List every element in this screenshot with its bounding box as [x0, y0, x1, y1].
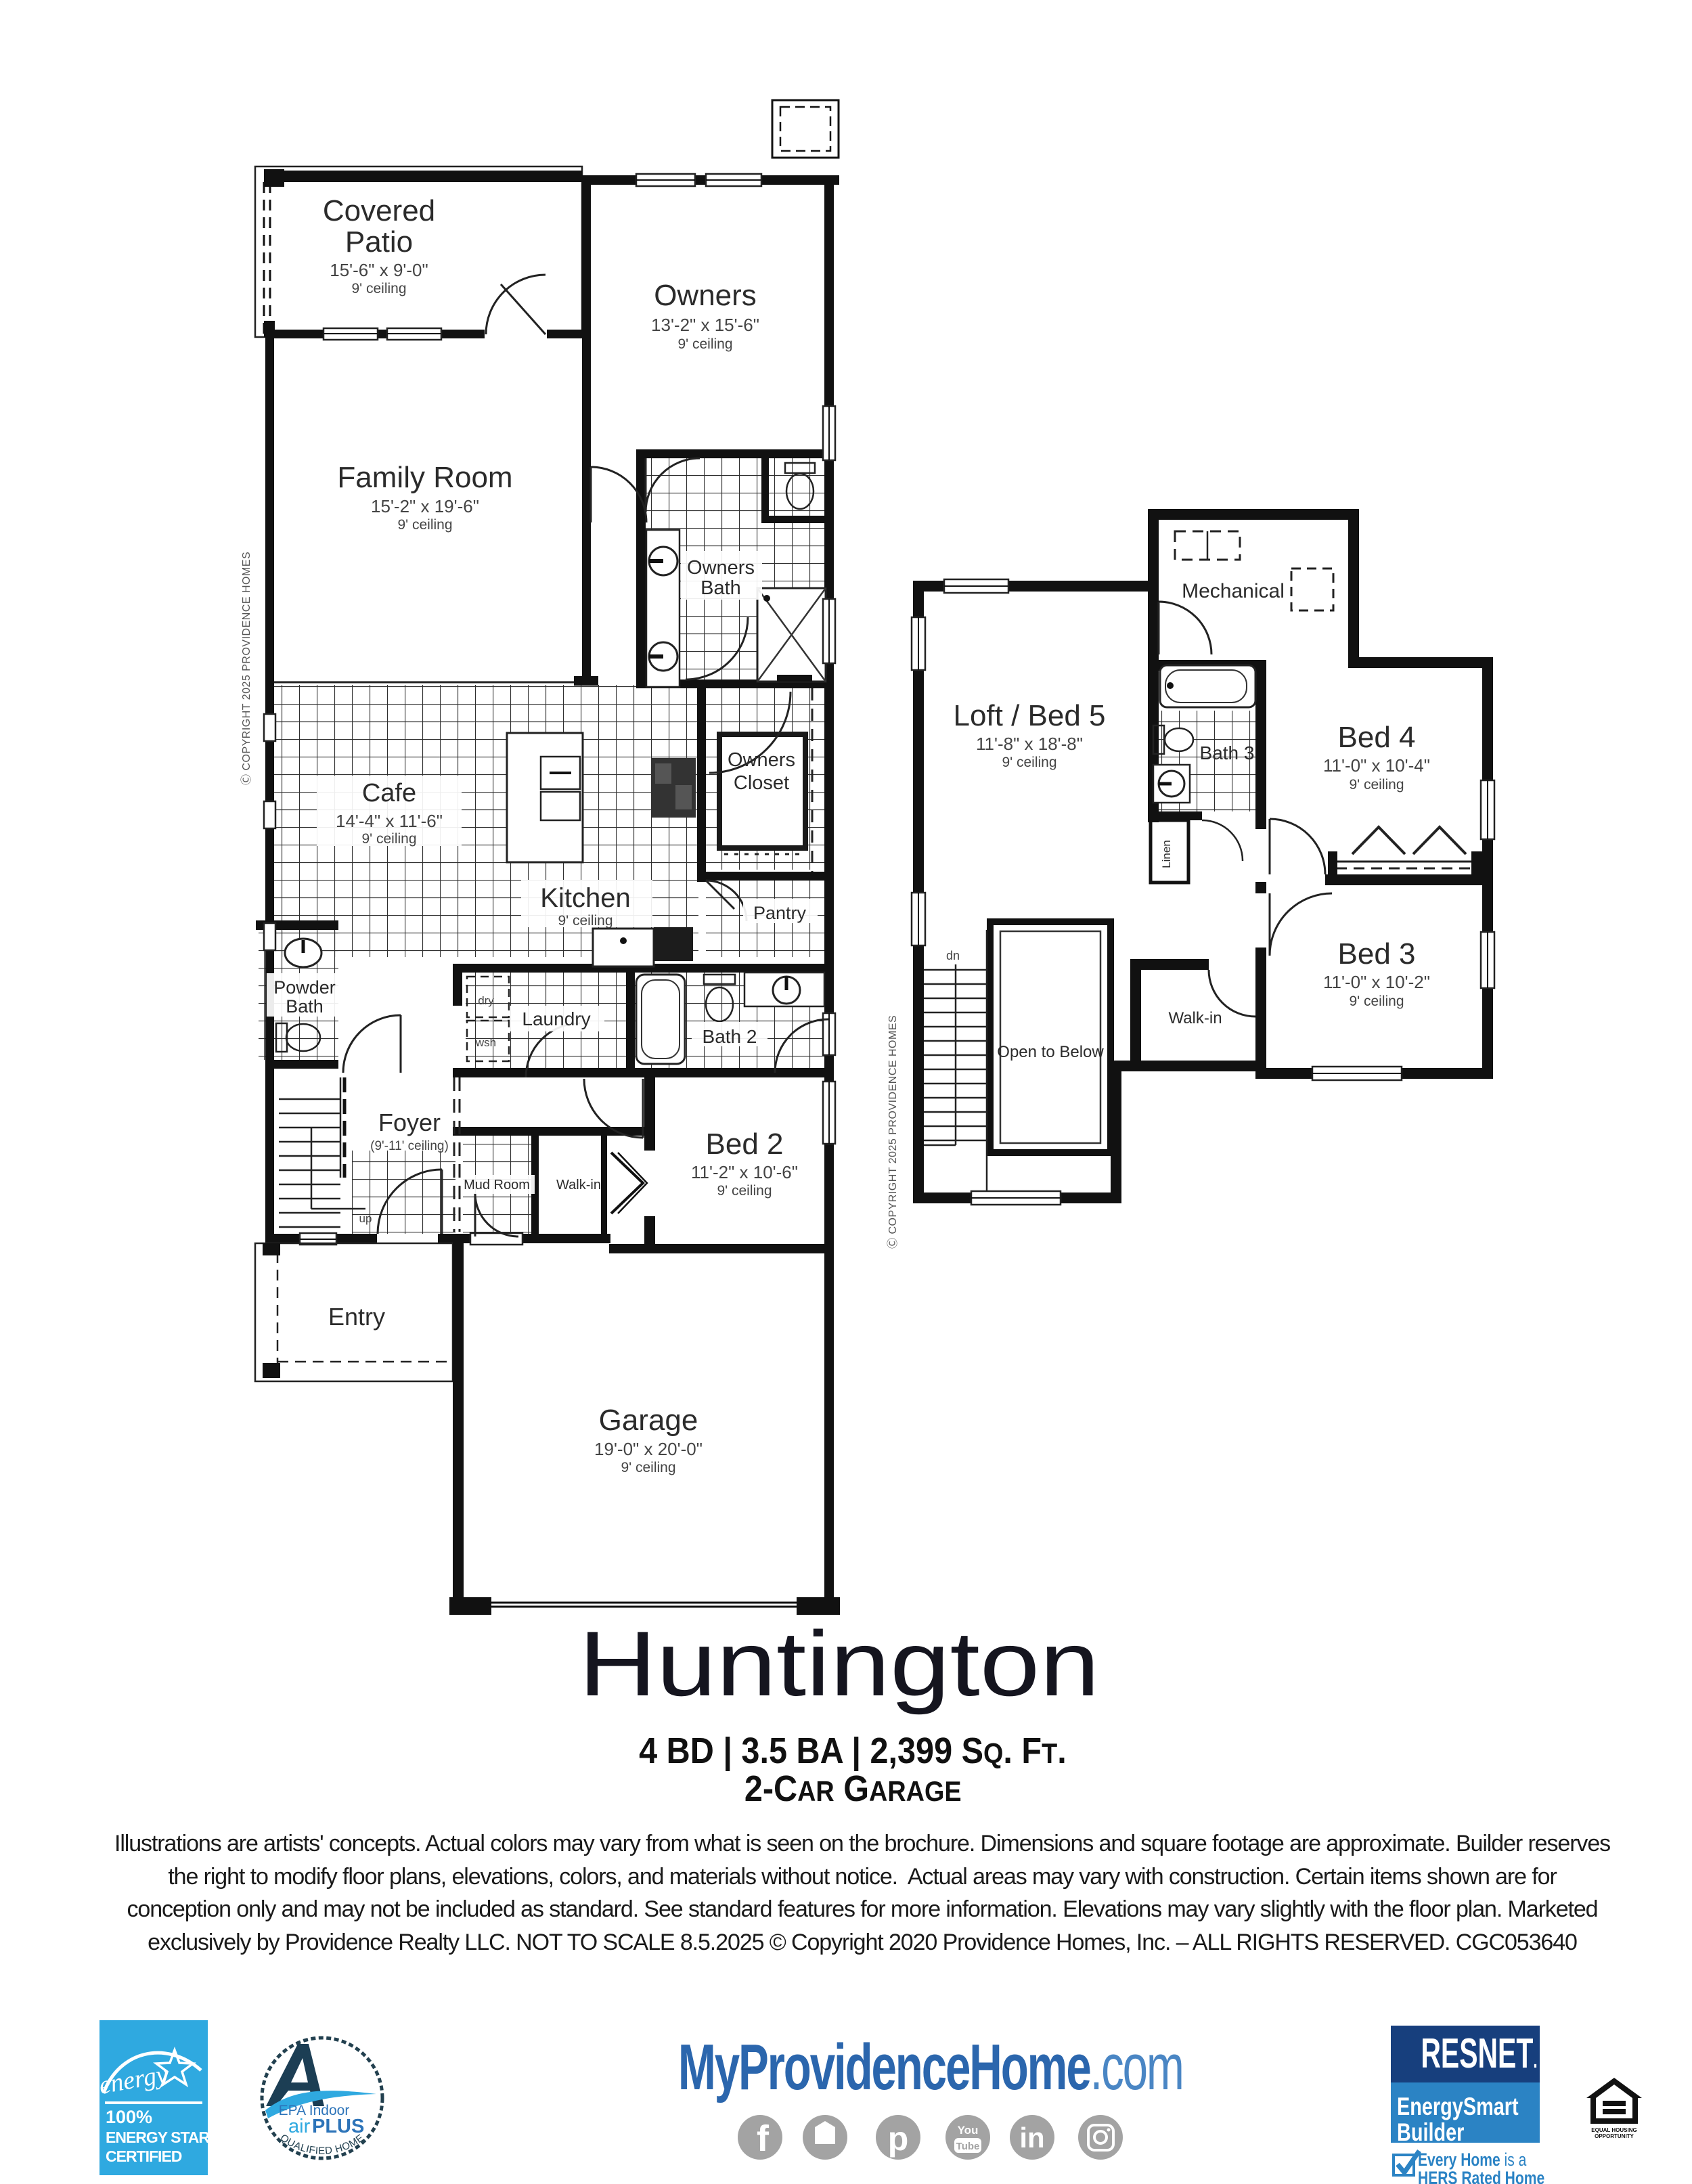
- svg-text:CERTIFIED: CERTIFIED: [106, 2147, 182, 2165]
- svg-text:Powder: Powder: [273, 977, 336, 998]
- svg-text:15'-6" x 9'-0": 15'-6" x 9'-0": [330, 260, 428, 280]
- svg-text:Tube: Tube: [956, 2141, 980, 2152]
- svg-text:f: f: [757, 2118, 770, 2159]
- svg-text:(9'-11' ceiling): (9'-11' ceiling): [370, 1139, 449, 1153]
- svg-text:9' ceiling: 9' ceiling: [1002, 755, 1056, 770]
- svg-text:OPPORTUNITY: OPPORTUNITY: [1595, 2133, 1634, 2139]
- svg-text:up: up: [359, 1212, 372, 1225]
- svg-text:Bath: Bath: [286, 996, 324, 1017]
- svg-text:Loft / Bed 5: Loft / Bed 5: [953, 699, 1105, 732]
- svg-text:Pantry: Pantry: [753, 903, 807, 923]
- svg-text:Owners: Owners: [728, 749, 795, 771]
- svg-text:Bed 4: Bed 4: [1338, 721, 1416, 754]
- svg-text:Open to Below: Open to Below: [997, 1043, 1104, 1061]
- svg-text:9' ceiling: 9' ceiling: [397, 517, 452, 533]
- svg-text:You: You: [958, 2124, 979, 2137]
- svg-text:dry: dry: [478, 994, 494, 1007]
- svg-text:9' ceiling: 9' ceiling: [621, 1460, 675, 1475]
- svg-text:Bed 3: Bed 3: [1338, 937, 1416, 971]
- svg-text:11'-8" x 18'-8": 11'-8" x 18'-8": [976, 734, 1083, 754]
- svg-text:HERS Rated Home: HERS Rated Home: [1418, 2168, 1544, 2184]
- svg-text:Patio: Patio: [345, 225, 413, 259]
- svg-text:Walk-in: Walk-in: [556, 1178, 601, 1193]
- svg-text:Mechanical: Mechanical: [1182, 580, 1285, 602]
- svg-text:9' ceiling: 9' ceiling: [351, 281, 406, 296]
- svg-text:9' ceiling: 9' ceiling: [1349, 994, 1404, 1009]
- svg-text:9' ceiling: 9' ceiling: [361, 831, 416, 847]
- svg-text:9' ceiling: 9' ceiling: [558, 913, 613, 929]
- svg-text:Owners: Owners: [654, 279, 757, 312]
- svg-text:Kitchen: Kitchen: [540, 883, 630, 913]
- svg-text:9' ceiling: 9' ceiling: [717, 1183, 772, 1199]
- svg-text:Bath 2: Bath 2: [703, 1026, 757, 1047]
- svg-text:Covered: Covered: [323, 194, 435, 227]
- svg-text:Ⓒ COPYRIGHT 2025 PROVIDENCE HO: Ⓒ COPYRIGHT 2025 PROVIDENCE HOMES: [887, 1015, 899, 1249]
- svg-text:13'-2" x 15'-6": 13'-2" x 15'-6": [651, 315, 759, 335]
- svg-text:Owners: Owners: [687, 557, 755, 579]
- svg-text:Cafe: Cafe: [362, 779, 416, 807]
- svg-text:Bed 2: Bed 2: [706, 1128, 784, 1161]
- svg-text:Foyer: Foyer: [378, 1109, 441, 1136]
- svg-text:100%: 100%: [106, 2107, 152, 2127]
- svg-text:Garage: Garage: [599, 1404, 698, 1437]
- svg-text:11'-0" x 10'-2": 11'-0" x 10'-2": [1323, 972, 1430, 992]
- svg-text:Linen: Linen: [1160, 840, 1173, 868]
- svg-text:11'-0" x 10'-4": 11'-0" x 10'-4": [1323, 755, 1430, 776]
- svg-text:p: p: [888, 2120, 909, 2158]
- svg-text:15'-2" x 19'-6": 15'-2" x 19'-6": [371, 496, 479, 516]
- svg-text:14'-4" x 11'-6": 14'-4" x 11'-6": [336, 811, 443, 831]
- svg-text:9' ceiling: 9' ceiling: [677, 336, 732, 352]
- svg-text:PLUS: PLUS: [312, 2116, 364, 2137]
- svg-text:19'-0" x 20'-0": 19'-0" x 20'-0": [594, 1439, 703, 1459]
- svg-text:Laundry: Laundry: [522, 1008, 590, 1029]
- svg-text:11'-2" x 10'-6": 11'-2" x 10'-6": [691, 1162, 798, 1182]
- svg-text:Bath: Bath: [700, 577, 741, 599]
- svg-text:Mud Room: Mud Room: [464, 1178, 530, 1193]
- svg-text:Family Room: Family Room: [337, 461, 512, 494]
- svg-text:EQUAL HOUSING: EQUAL HOUSING: [1591, 2127, 1637, 2133]
- svg-text:9' ceiling: 9' ceiling: [1349, 777, 1404, 793]
- svg-text:dn: dn: [946, 949, 960, 962]
- svg-text:Entry: Entry: [328, 1303, 385, 1331]
- svg-text:Bath 3: Bath 3: [1200, 742, 1255, 763]
- svg-text:air: air: [288, 2116, 311, 2137]
- svg-text:ENERGY STAR: ENERGY STAR: [106, 2129, 208, 2146]
- svg-text:Closet: Closet: [734, 772, 789, 794]
- svg-text:in: in: [1019, 2122, 1044, 2154]
- svg-text:Walk-in: Walk-in: [1168, 1009, 1222, 1027]
- svg-text:Every Home is a: Every Home is a: [1418, 2150, 1527, 2170]
- svg-text:wsh: wsh: [475, 1036, 496, 1049]
- svg-text:Ⓒ COPYRIGHT 2025 PROVIDENCE HO: Ⓒ COPYRIGHT 2025 PROVIDENCE HOMES: [240, 552, 252, 785]
